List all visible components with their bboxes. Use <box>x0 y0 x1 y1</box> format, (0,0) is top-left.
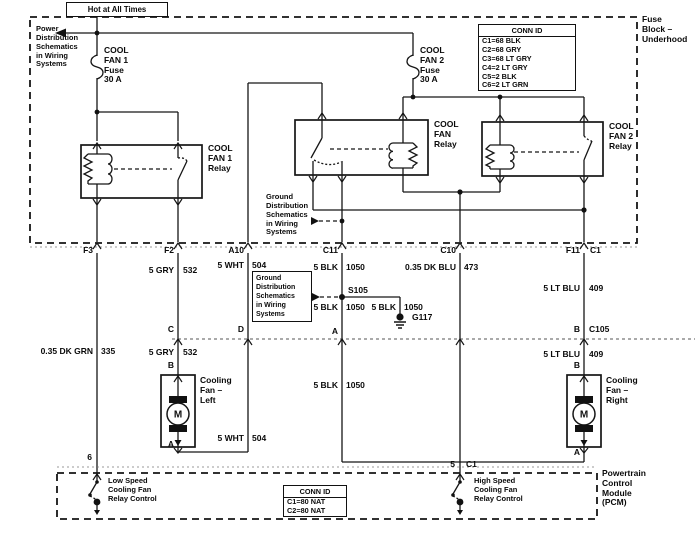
conn-id-pcm-box: CONN ID C1=80 NAT C2=80 NAT <box>283 485 347 517</box>
wire-blk: 5 BLK <box>313 263 338 273</box>
wire-lt-blu-num: 409 <box>589 350 603 360</box>
wire-wht: 5 WHT <box>218 261 244 271</box>
motor-left-cap-top <box>169 396 187 403</box>
ground-distribution-note-boxed: Ground Distribution Schematics in Wiring… <box>252 271 312 322</box>
s105-splice <box>339 294 345 300</box>
g117-ball <box>396 313 403 320</box>
motor-right-cap-top <box>575 396 593 403</box>
wire-lt-blu: 5 LT BLU <box>543 350 580 360</box>
wire-dk-blu-num: 473 <box>464 263 478 273</box>
wire-blk-num: 1050 <box>346 263 365 273</box>
wire-dk-grn-num: 335 <box>101 347 115 357</box>
wire-lt-blu: 5 LT BLU <box>543 284 580 294</box>
hot-at-all-times-box: Hot at All Times <box>66 2 168 17</box>
pin-f11: F11 <box>566 246 580 256</box>
wire-gry: 5 GRY <box>149 266 174 276</box>
wire-dk-grn: 0.35 DK GRN <box>41 347 93 357</box>
fan-right-label: Cooling Fan – Right <box>606 376 638 405</box>
splice-s105: S105 <box>348 286 368 296</box>
pin-c105: C105 <box>589 325 609 335</box>
low-speed-driver-ball <box>94 499 101 506</box>
pin-c11: C11 <box>323 246 338 256</box>
motor-left-cap-bottom <box>169 425 187 432</box>
pin-f2: F2 <box>164 246 174 256</box>
wire-blk-num: 1050 <box>346 303 365 313</box>
pin-a: A <box>574 448 580 458</box>
relay-mid-switch <box>311 120 342 175</box>
conn-id-row: C2=80 NAT <box>284 507 346 516</box>
wire-dk-blu: 0.35 DK BLU <box>405 263 456 273</box>
relay2-switch <box>584 122 592 176</box>
wire-blk: 5 BLK <box>313 381 338 391</box>
low-speed-control-label: Low Speed Cooling Fan Relay Control <box>108 477 157 504</box>
pcm-label: Powertrain Control Module (PCM) <box>602 469 646 508</box>
wire-blk: 5 BLK <box>313 303 338 313</box>
pin-6: 6 <box>87 453 92 463</box>
pin-5: 5 <box>450 460 455 470</box>
relay2-resistor <box>486 145 494 169</box>
pin-a: A <box>168 440 174 450</box>
ground-note-arrow-2 <box>312 293 320 301</box>
pin-d: D <box>238 325 244 335</box>
pin-b: B <box>574 361 580 371</box>
fuse-block-label: Fuse Block – Underhood <box>642 15 687 44</box>
wire-gry-num: 532 <box>183 266 197 276</box>
wire-blk: 5 BLK <box>371 303 396 313</box>
pin-f3: F3 <box>83 246 93 256</box>
g117-ground-symbol <box>394 322 406 328</box>
conn-id-row: C6=2 LT GRN <box>479 81 575 90</box>
relay-mid-label: COOL FAN Relay <box>434 120 459 149</box>
pin-a: A <box>332 327 338 337</box>
wire-lt-blu-num: 409 <box>589 284 603 294</box>
wire-gry-num: 532 <box>183 348 197 358</box>
relay1-switch <box>178 145 187 242</box>
pin-c1: C1 <box>466 460 477 470</box>
wire-blk-num: 1050 <box>346 381 365 391</box>
relay-mid-coil <box>389 143 393 168</box>
relay1-resistor <box>84 154 92 184</box>
fuse1-element <box>91 55 103 79</box>
ground-g117: G117 <box>412 313 432 323</box>
power-distribution-note: Power Distribution Schematics in Wiring … <box>36 25 78 69</box>
pin-c: C <box>168 325 174 335</box>
pin-b: B <box>168 361 174 371</box>
wire-gry: 5 GRY <box>149 348 174 358</box>
high-speed-driver-ball <box>457 499 464 506</box>
conn-id-underhood-box: CONN ID C1=68 BLK C2=68 GRY C3=68 LT GRY… <box>478 24 576 91</box>
pin-a10: A10 <box>228 246 244 256</box>
fan-left-label: Cooling Fan – Left <box>200 376 232 405</box>
fuse2-label: COOL FAN 2 Fuse 30 A <box>420 46 445 85</box>
ground-distribution-note: Ground Distribution Schematics in Wiring… <box>266 193 308 237</box>
high-speed-control-label: High Speed Cooling Fan Relay Control <box>474 477 523 504</box>
relay1-box <box>81 145 202 198</box>
motor-right-cap-bottom <box>575 425 593 432</box>
ground-note-arrow-1 <box>311 217 319 225</box>
relay-mid-box <box>295 120 428 175</box>
wiring-diagram-page: M M Hot at All Times CONN ID C1=68 BLK C… <box>0 0 700 538</box>
motor-left-flow-arrow <box>175 440 182 446</box>
pin-c10: C10 <box>440 246 456 256</box>
relay1-label: COOL FAN 1 Relay <box>208 144 233 173</box>
relay2-coil <box>510 145 514 169</box>
relay2-label: COOL FAN 2 Relay <box>609 122 634 151</box>
wire-wht-num: 504 <box>252 434 266 444</box>
relay1-coil <box>108 154 112 184</box>
motor-right-letter: M <box>580 410 588 421</box>
fuse2-element <box>407 55 419 79</box>
pin-b: B <box>574 325 580 335</box>
motor-left-letter: M <box>174 410 182 421</box>
wire-wht-num: 504 <box>252 261 266 271</box>
fuse1-label: COOL FAN 1 Fuse 30 A <box>104 46 129 85</box>
motor-right-flow-arrow <box>581 440 588 446</box>
relay-mid-resistor <box>409 143 417 168</box>
wire-wht: 5 WHT <box>218 434 244 444</box>
pin-c1: C1 <box>590 246 601 256</box>
